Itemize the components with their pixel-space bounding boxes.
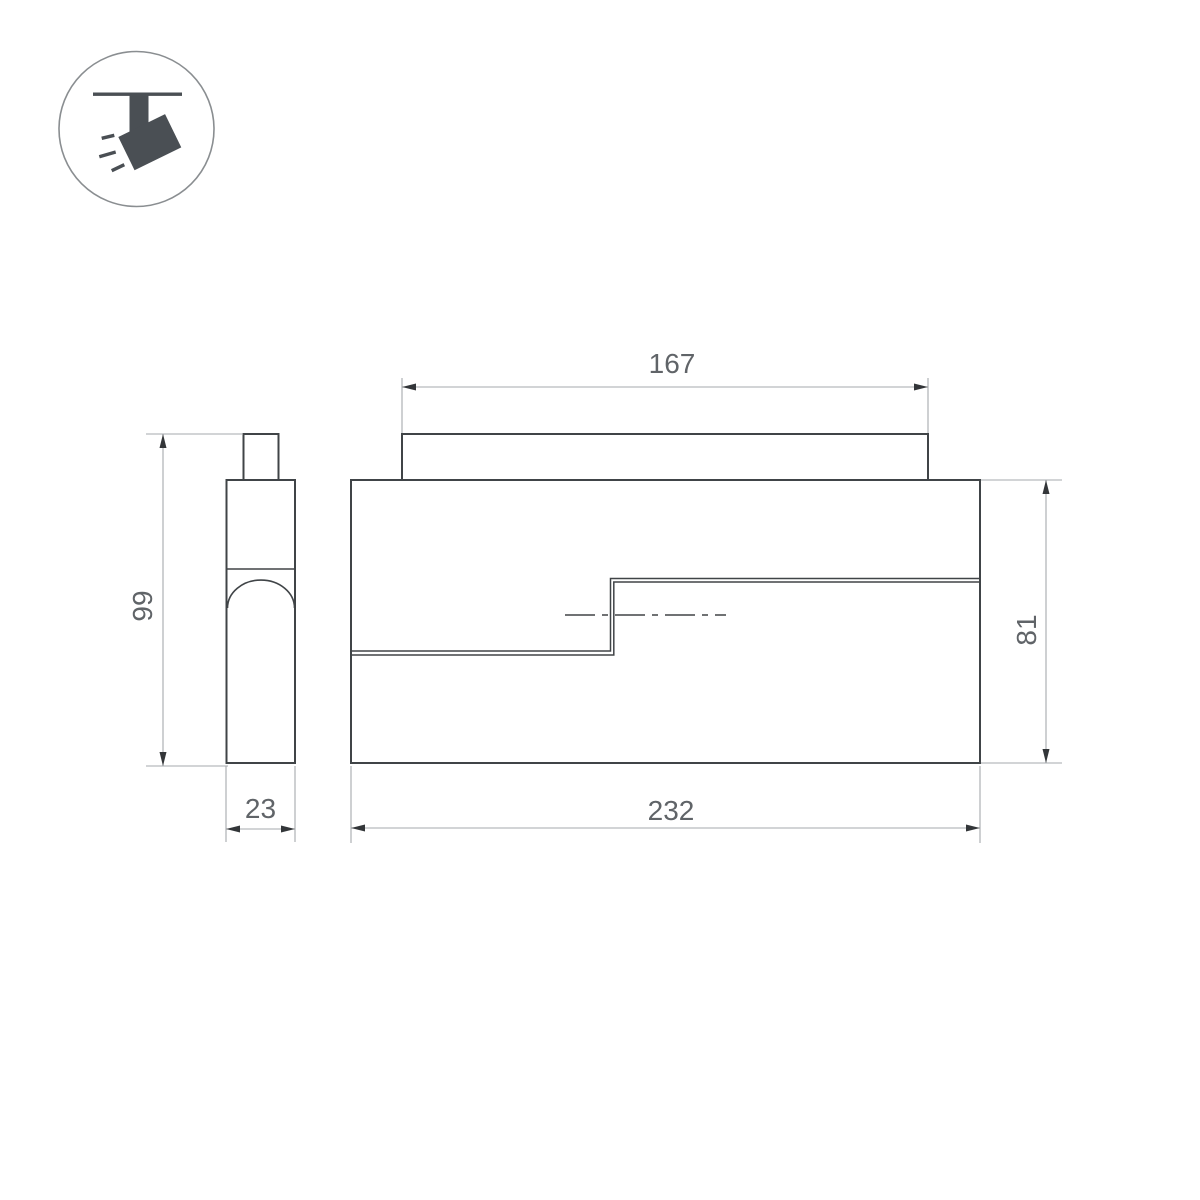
side-body xyxy=(227,480,296,763)
dimension-value: 99 xyxy=(127,590,158,621)
dimension-value: 167 xyxy=(649,348,696,379)
dimension-body-height: 81 xyxy=(981,480,1062,763)
side-track-connector xyxy=(244,434,279,480)
side-view xyxy=(227,434,296,763)
arrow-up-icon xyxy=(160,434,167,448)
front-body xyxy=(351,480,980,763)
track-spotlight-icon xyxy=(59,52,214,207)
arrow-left-icon xyxy=(351,825,365,832)
arrow-up-icon xyxy=(1043,480,1050,494)
arrow-left-icon xyxy=(226,826,240,833)
dimension-adapter-length: 167 xyxy=(402,348,928,433)
arrow-down-icon xyxy=(160,752,167,766)
arrow-right-icon xyxy=(914,384,928,391)
dimension-value: 232 xyxy=(648,795,695,826)
arrow-right-icon xyxy=(966,825,980,832)
dimension-value: 81 xyxy=(1011,614,1042,645)
dimension-body-depth: 23 xyxy=(226,766,295,842)
drawing-canvas: 167 232 81 99 xyxy=(0,0,1200,1200)
dimension-body-length: 232 xyxy=(351,766,980,843)
front-track-adapter xyxy=(402,434,928,480)
arrow-right-icon xyxy=(281,826,295,833)
dimension-value: 23 xyxy=(245,793,276,824)
dimension-overall-height: 99 xyxy=(127,434,242,766)
arrow-down-icon xyxy=(1043,749,1050,763)
technical-drawing: 167 232 81 99 xyxy=(0,0,1200,1200)
arrow-left-icon xyxy=(402,384,416,391)
front-view xyxy=(351,434,980,763)
